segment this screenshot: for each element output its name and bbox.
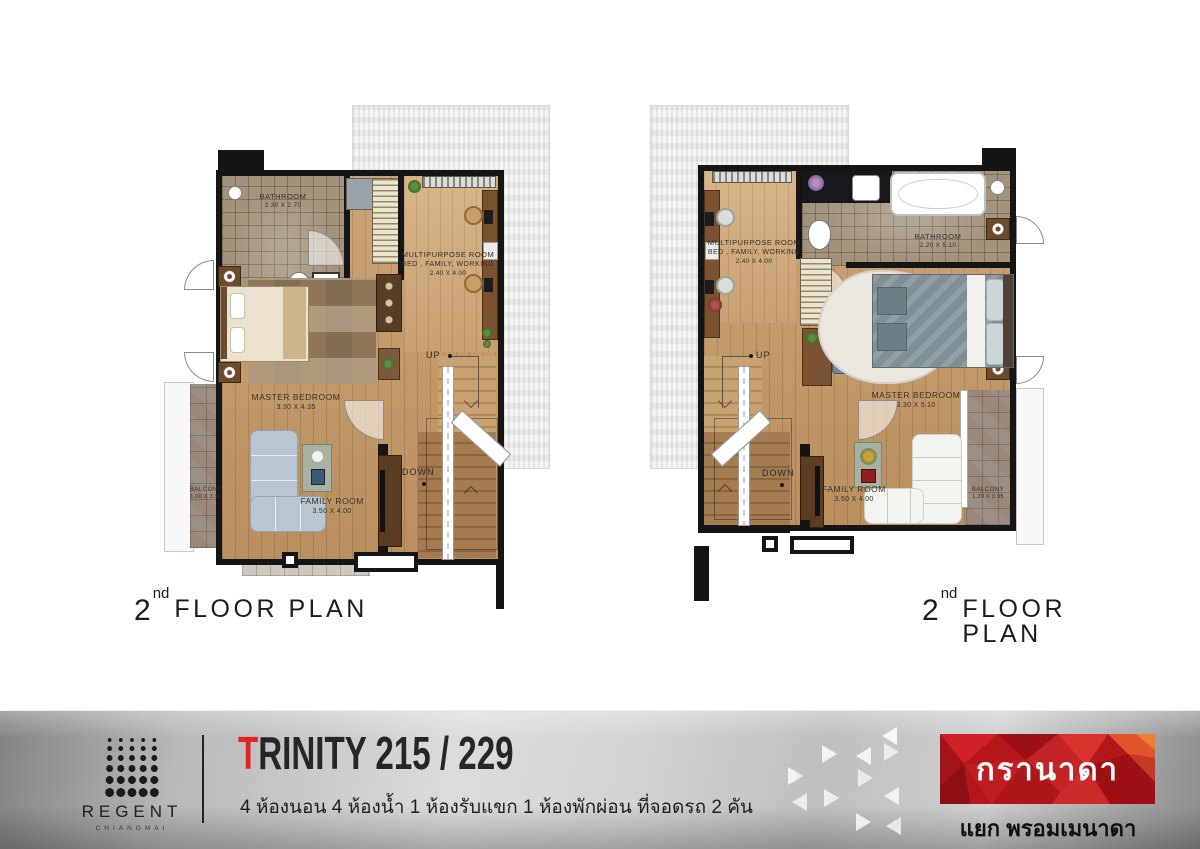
balcony: [966, 390, 1010, 525]
label-family-room: FAMILY ROOM 3.50 X 4.00: [822, 484, 886, 505]
toilet-icon: [808, 220, 831, 250]
shelf: [712, 171, 792, 183]
stairs-down-label: DOWN: [762, 468, 795, 478]
label-multipurpose: MULTIPURPOSE ROOM BED , FAMILY, WORKING …: [402, 250, 495, 278]
porch: [790, 536, 854, 554]
footer-banner: REGENT CHIANGMAI TRINITY 215 / 229 4 ห้อ…: [0, 710, 1200, 849]
tv-cabinet: [800, 456, 824, 528]
floor-plan-title: 2 nd FLOOR PLAN: [922, 586, 1100, 647]
office-chair: [464, 206, 483, 225]
balcony: [190, 384, 216, 548]
stair-railing: [442, 366, 454, 560]
stairs-down-label: DOWN: [402, 467, 435, 477]
label-master-bedroom: MASTER BEDROOM 3.30 X 4.35: [252, 392, 341, 413]
plant-icon: [806, 332, 818, 344]
brochure-page: UP DOWN BATHROOM 2.30 X 2.70 MULTIPURPOS…: [0, 0, 1200, 848]
headboard: [221, 287, 227, 359]
stairs-down-dot: [780, 483, 784, 487]
triangle-icon: [856, 813, 871, 831]
wall-bath-bottom: [846, 262, 1010, 268]
project-subtitle-thai: 4 ห้องนอน 4 ห้องน้ำ 1 ห้องรับแขก 1 ห้องพ…: [240, 792, 753, 822]
plant-icon: [483, 340, 491, 348]
floor-plan-left: UP DOWN BATHROOM 2.30 X 2.70 MULTIPURPOS…: [130, 100, 580, 645]
wall-extension: [496, 559, 504, 609]
balcony-railing-outline: [1016, 388, 1044, 545]
regent-city: CHIANGMAI: [62, 825, 202, 832]
mid-cabinet: [376, 274, 402, 332]
stairs-up-label: UP: [426, 350, 441, 360]
stairs-up-dot: [749, 354, 753, 358]
bathtub-icon: [890, 172, 986, 216]
triangle-icon: [788, 767, 803, 785]
sink-icon: [852, 175, 880, 201]
label-multipurpose: MULTIPURPOSE ROOM BED , FAMILY, WORKING …: [708, 238, 801, 266]
stairs-up-label: UP: [756, 350, 771, 360]
wardrobe: [372, 178, 400, 264]
wall-stairs-bottom: [698, 525, 790, 533]
folded-blanket: [877, 323, 907, 351]
bed: [872, 274, 1014, 368]
bathtub-basin: [898, 179, 978, 209]
nightstand: [986, 218, 1010, 240]
pillow: [986, 323, 1004, 365]
column: [762, 536, 778, 552]
plant-icon: [382, 358, 394, 370]
office-chair: [716, 276, 735, 295]
monitor-icon: [484, 278, 493, 292]
vase-icon: [311, 450, 324, 463]
label-master-bedroom: MASTER BEDROOM 3.30 X 5.10: [872, 390, 961, 411]
door-arc: [1016, 216, 1044, 244]
door-arc: [184, 352, 214, 382]
plant-icon: [408, 180, 421, 193]
flowers-icon: [808, 175, 824, 191]
door-arc: [184, 260, 214, 290]
office-chair: [716, 208, 735, 227]
floor-plan-right: UP DOWN MULTIPURPOSE ROOM BED , FAMILY, …: [650, 100, 1100, 645]
granada-brand-thai: กรานาดา: [940, 734, 1155, 804]
tray: [861, 469, 876, 483]
leader-line: [452, 356, 478, 357]
regent-dots-icon: [104, 738, 160, 798]
leader-line: [722, 356, 749, 357]
title-first-letter: T: [238, 727, 258, 779]
label-balcony: BALCONY 1.00 X 3.95: [190, 486, 222, 502]
label-bathroom: BATHROOM 2.30 X 2.70: [260, 192, 307, 211]
folded-blanket: [877, 287, 907, 315]
plant-icon: [708, 298, 722, 312]
monitor-icon: [705, 212, 714, 226]
nightstand: [218, 362, 241, 383]
headboard: [1003, 275, 1013, 367]
bed-throw: [283, 287, 306, 359]
fruit-plate-icon: [860, 448, 877, 465]
triangle-icon: [824, 789, 839, 807]
coffee-table: [302, 444, 332, 492]
tv-icon: [380, 470, 385, 532]
wall-extension: [694, 546, 709, 601]
bed-throw: [967, 275, 985, 367]
shower-icon: [228, 186, 242, 200]
leader-line: [722, 356, 723, 408]
door-arc: [1016, 356, 1044, 384]
tv-icon: [815, 466, 820, 516]
triangle-icon: [858, 769, 873, 787]
label-balcony: BALCONY 1.20 X 3.95: [972, 486, 1004, 502]
shower-icon: [990, 180, 1005, 195]
title-rest: RINITY 215 / 229: [258, 727, 513, 779]
coffee-table: [854, 442, 882, 488]
divider: [202, 735, 204, 823]
nightstand: [218, 266, 241, 287]
column: [282, 552, 298, 568]
plant-icon: [482, 328, 492, 338]
pillow: [230, 327, 245, 353]
triangle-icon: [792, 793, 807, 811]
stairs-up-dot: [448, 354, 452, 358]
triangle-icon: [884, 743, 899, 761]
stairs-down-dot: [422, 482, 426, 486]
porch: [354, 552, 418, 572]
triangle-icon: [886, 817, 901, 835]
label-family-room: FAMILY ROOM 3.50 X 4.00: [300, 496, 364, 517]
vanity: [346, 178, 374, 210]
regent-name: REGENT: [62, 802, 202, 822]
leader-line: [478, 356, 479, 408]
wall-stub: [800, 444, 810, 456]
chevron-pattern: [786, 723, 946, 845]
bed: [220, 286, 309, 362]
label-bathroom: BATHROOM 2.20 X 5.10: [915, 232, 962, 251]
project-title: TRINITY 215 / 229: [238, 730, 514, 776]
monitor-icon: [705, 280, 714, 294]
floor-plan-title: 2 nd FLOOR PLAN: [134, 586, 368, 626]
triangle-icon: [884, 787, 899, 805]
tray: [311, 469, 325, 485]
monitor-icon: [484, 210, 493, 224]
triangle-icon: [856, 747, 871, 765]
granada-location-thai: แยก พรอมเมนาดา: [928, 811, 1168, 846]
shelf: [422, 176, 496, 188]
regent-logo: REGENT CHIANGMAI: [62, 736, 202, 832]
triangle-icon: [822, 745, 837, 763]
pillow: [986, 279, 1004, 321]
pillow: [230, 293, 245, 319]
wall-stub: [800, 520, 810, 530]
